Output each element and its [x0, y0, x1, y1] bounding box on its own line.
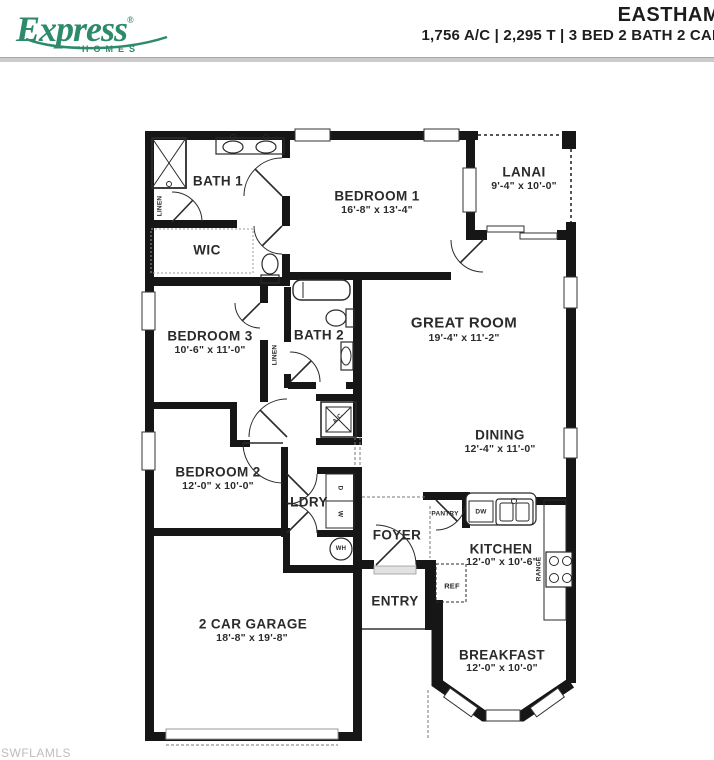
- mls-watermark: SWFLAMLS: [1, 746, 71, 760]
- kitchen-label: KITCHEN: [470, 542, 533, 557]
- breakfast-label: BREAKFAST: [459, 648, 545, 663]
- breakfast-dims: 12'-0" x 10'-0": [466, 662, 538, 674]
- dining-dims: 12'-4" x 11'-0": [464, 443, 535, 455]
- great-room-dims: 19'-4" x 11'-2": [428, 332, 499, 344]
- pantry-label: PANTRY: [431, 511, 458, 518]
- dining-label: DINING: [475, 428, 525, 443]
- bedroom2-label: BEDROOM 2: [175, 465, 260, 480]
- bath-sink-icon: [341, 342, 353, 370]
- garage-dims: 18'-8" x 19'-8": [216, 632, 288, 644]
- shower-icon: [152, 138, 186, 188]
- bedroom1-dims: 16'-8" x 13'-4": [341, 204, 413, 216]
- entry-threshold: [374, 566, 416, 574]
- garage-label: 2 CAR GARAGE: [199, 617, 307, 632]
- washer-label: W: [337, 511, 344, 517]
- entry-label: ENTRY: [371, 594, 418, 609]
- great-room-label: GREAT ROOM: [411, 315, 517, 332]
- bathtub-icon: [293, 280, 350, 300]
- range-label: RANGE: [536, 557, 543, 581]
- double-vanity-sinks-icon: [216, 135, 284, 155]
- floor-plan-drawing: [0, 0, 714, 759]
- kitchen-dims: 12'-0" x 10'-6": [466, 556, 538, 568]
- wic-label: WIC: [193, 243, 220, 258]
- sliding-glass-door: [487, 226, 557, 239]
- toilet-icon: [326, 309, 354, 327]
- garage-door: [166, 729, 338, 739]
- washer-dryer-icon: [326, 474, 354, 528]
- bedroom3-label: BEDROOM 3: [167, 329, 252, 344]
- bedroom1-label: BEDROOM 1: [334, 189, 419, 204]
- foyer-label: FOYER: [373, 528, 422, 543]
- bedroom2-dims: 12'-0" x 10'-0": [182, 480, 254, 492]
- lanai-dims: 9'-4" x 10'-0": [491, 180, 557, 192]
- linen1-label: LINEN: [157, 196, 164, 217]
- dryer-label: D: [337, 486, 344, 491]
- linen2-label: LINEN: [272, 345, 279, 366]
- bedroom3-dims: 10'-6" x 11'-0": [174, 344, 245, 356]
- laundry-label: LDRY: [290, 495, 328, 510]
- range-icon: [546, 552, 572, 587]
- bath2-label: BATH 2: [294, 328, 344, 343]
- refrigerator-label: REF: [444, 582, 460, 591]
- bath1-label: BATH 1: [193, 174, 243, 189]
- water-heater-label: WH: [336, 546, 346, 552]
- flyer-page: Express® HOMES EASTHAM 1,756 A/C | 2,295…: [0, 0, 714, 759]
- lanai-label: LANAI: [502, 165, 545, 180]
- dishwasher-label: DW: [475, 509, 486, 516]
